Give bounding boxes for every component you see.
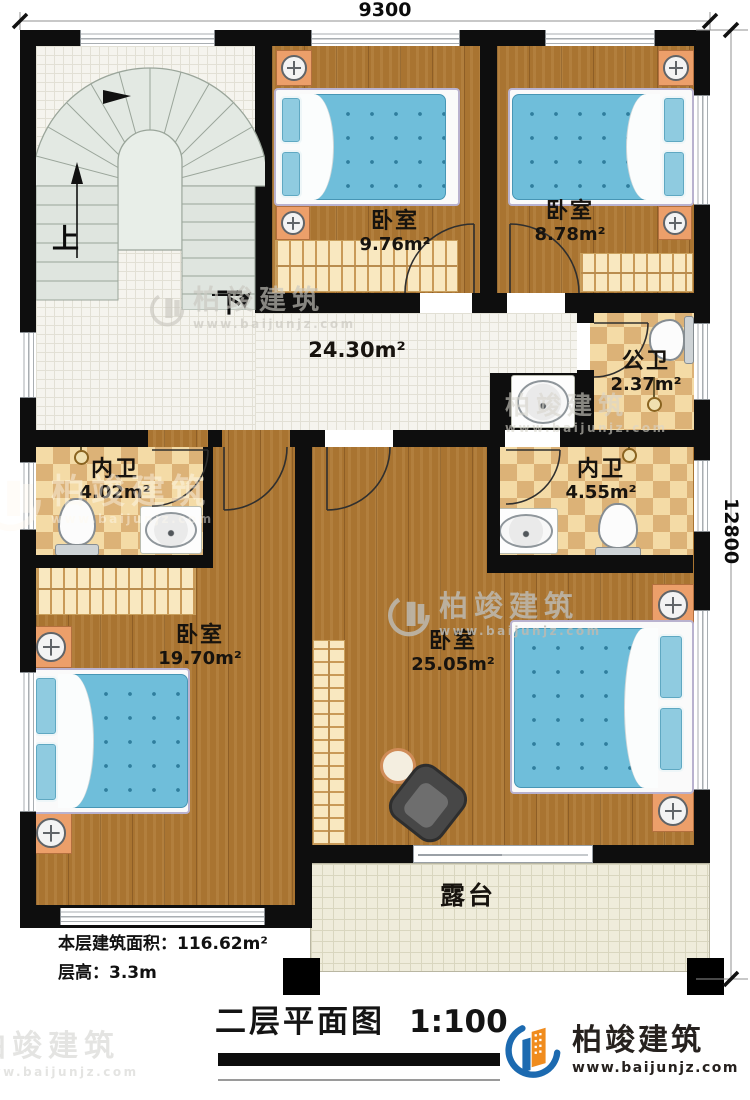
lamp-icon — [663, 211, 687, 235]
pillow — [280, 150, 302, 198]
window — [60, 908, 265, 925]
brand-logo: 柏竣建筑 www.baijunjz.com — [505, 1018, 739, 1084]
floor-plan: 上 下 9300 12800 卧室 9.76m² 卧室 8.78m² — [0, 0, 750, 1100]
pillow — [34, 742, 58, 802]
room-name: 卧室 — [176, 624, 224, 649]
drawing-title: 二层平面图 1:100 — [215, 996, 508, 1041]
wardrobe-bedroom2 — [580, 253, 693, 292]
wall-bedroom1-bottom — [255, 293, 420, 313]
sink — [499, 514, 553, 548]
title-underline-thin — [218, 1079, 500, 1081]
terrace-pillar — [283, 958, 320, 995]
pull-cord-handle — [647, 397, 662, 412]
wall-ensuiteL-right — [203, 447, 213, 568]
wall-bedroom3-4 — [295, 447, 312, 905]
pillow — [662, 150, 686, 198]
room-area: 2.37m² — [610, 375, 681, 395]
window — [80, 30, 215, 46]
room-label-bedroom1: 卧室 9.76m² — [330, 210, 460, 255]
room-label-bedroom4: 卧室 25.05m² — [386, 630, 520, 675]
window — [694, 460, 710, 532]
stairs-up-label: 上 — [52, 226, 79, 253]
nightstand — [276, 50, 312, 86]
room-area: 4.02m² — [79, 483, 150, 503]
room-name: 卧室 — [546, 200, 594, 225]
brand-url: www.baijunjz.com — [572, 1060, 739, 1076]
room-area: 25.05m² — [411, 655, 495, 675]
lamp-icon — [658, 796, 688, 826]
sliding-door-leaf — [502, 854, 588, 856]
watermark: 柏竣建筑www.baijunjz.com — [0, 1032, 139, 1078]
nightstand — [652, 790, 694, 832]
wardrobe-bedroom4 — [313, 640, 345, 846]
stairs-down-label: 下 — [216, 290, 243, 317]
room-area: 24.30m² — [308, 338, 406, 362]
lamp-icon — [281, 55, 307, 81]
wall-bedroom2-bottom — [565, 293, 694, 313]
wall-publicbath-left-bottom — [577, 370, 594, 430]
hall-sink — [517, 380, 569, 424]
nightstand — [30, 812, 72, 854]
pillow — [34, 676, 58, 736]
window — [20, 672, 36, 812]
room-label-bedroom2: 卧室 8.78m² — [508, 200, 632, 245]
floor-stats: 本层建筑面积：116.62m² 层高：3.3m — [58, 930, 268, 988]
wardrobe-bedroom3 — [36, 563, 196, 615]
watermark-url: www.baijunjz.com — [0, 1066, 139, 1078]
wall-hall-bottom-a — [36, 430, 148, 447]
watermark-brand: 柏竣建筑 — [0, 1032, 139, 1062]
pillow — [658, 706, 684, 772]
room-name: 露台 — [440, 881, 496, 910]
wall-publicbath-left-top — [577, 313, 594, 323]
room-name: 卧室 — [429, 630, 477, 655]
floor-area-line: 本层建筑面积：116.62m² — [58, 930, 268, 959]
room-label-public-bath: 公卫 2.37m² — [598, 350, 694, 395]
staircase — [36, 46, 265, 310]
room-name: 卧室 — [371, 210, 419, 235]
bed-blanket-fold — [624, 628, 658, 788]
window — [694, 610, 710, 790]
title-underline-thick — [218, 1053, 500, 1066]
sliding-door — [413, 845, 593, 863]
pillow — [280, 96, 302, 144]
lamp-icon — [663, 55, 689, 81]
nightstand — [658, 206, 692, 240]
window — [694, 95, 710, 205]
pillow — [658, 634, 684, 700]
sliding-door-leaf — [418, 854, 504, 856]
brand-logo-icon — [505, 1018, 563, 1084]
lamp-icon — [36, 632, 66, 662]
room-name: 公卫 — [622, 350, 670, 375]
room-area: 19.70m² — [158, 649, 242, 669]
room-area: 8.78m² — [534, 225, 605, 245]
window — [545, 30, 655, 46]
window — [311, 30, 460, 46]
wall-bedroom1-2 — [480, 46, 497, 293]
lamp-icon — [281, 211, 305, 235]
room-label-hall: 24.30m² — [292, 338, 422, 362]
wall-hall-bottom-d — [393, 430, 505, 447]
lamp-icon — [658, 590, 688, 620]
window — [694, 323, 710, 400]
wall-hall-bottom-e — [560, 430, 694, 447]
room-name: 内卫 — [91, 458, 139, 483]
dimension-right: 12800 — [720, 498, 742, 564]
brand-name: 柏竣建筑 — [572, 1026, 704, 1056]
title-text: 二层平面图 — [215, 996, 385, 1041]
toilet — [598, 503, 638, 549]
nightstand — [276, 206, 310, 240]
wall-hall-bottom-c — [290, 430, 325, 447]
window — [20, 462, 36, 530]
lamp-icon — [36, 818, 66, 848]
room-label-terrace: 露台 — [428, 876, 508, 912]
sink — [145, 512, 197, 548]
wall-ensuiteL-bottom — [36, 555, 213, 568]
wall-ensuiteR-bottom — [487, 555, 693, 573]
wall-ensuiteR-left — [487, 447, 500, 555]
terrace-pillar — [687, 958, 724, 995]
wall-bedroom1-bottom-stub — [472, 293, 497, 313]
nightstand — [658, 50, 694, 86]
wall-bedroom2-bottom-stub — [497, 293, 507, 313]
nightstand — [30, 626, 72, 668]
title-scale: 1:100 — [409, 1004, 508, 1040]
room-name: 内卫 — [577, 458, 625, 483]
room-area: 4.55m² — [565, 483, 636, 503]
window — [20, 332, 36, 398]
floor-height-line: 层高：3.3m — [58, 959, 268, 988]
toilet — [58, 498, 96, 546]
pillow — [662, 96, 686, 144]
room-label-ensuite-left: 内卫 4.02m² — [60, 458, 170, 503]
terrace-floor — [310, 863, 710, 972]
room-area: 9.76m² — [359, 235, 430, 255]
room-label-ensuite-right: 内卫 4.55m² — [546, 458, 656, 503]
wall-hall-bottom-b — [208, 430, 222, 447]
room-label-bedroom3: 卧室 19.70m² — [138, 624, 262, 669]
chair-seat — [401, 780, 451, 831]
dimension-top: 9300 — [340, 0, 430, 21]
bed-blanket-fold — [626, 94, 660, 200]
